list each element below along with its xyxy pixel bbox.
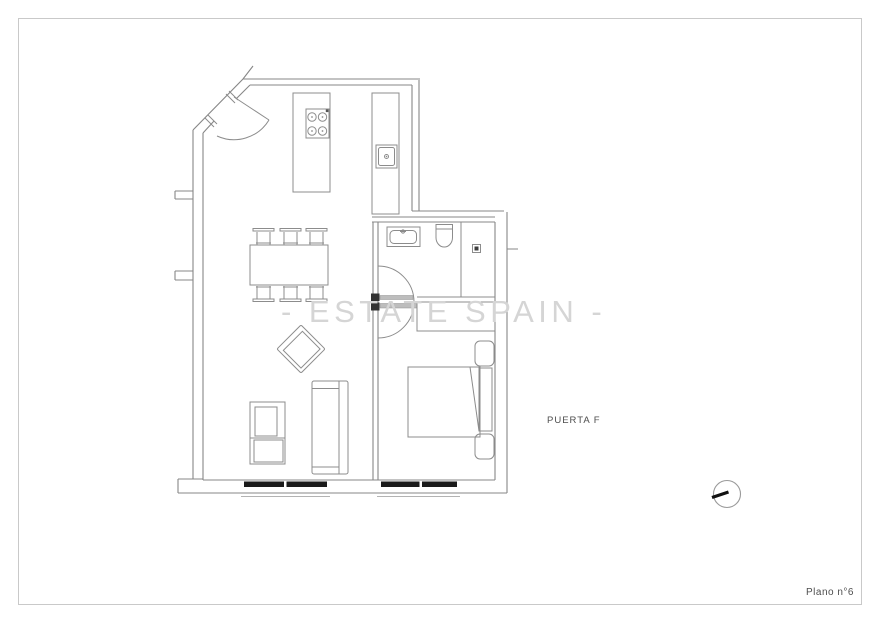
kitchen [293, 93, 399, 214]
shower [461, 222, 481, 297]
door-leaf [234, 97, 269, 120]
stove-icon [306, 109, 329, 138]
toilet-icon [436, 225, 453, 248]
door-jambs [205, 91, 238, 127]
bathroom-sink-icon [387, 227, 420, 247]
north-indicator-icon [712, 481, 741, 508]
mattress [408, 367, 480, 437]
watermark: - ESTATE SPAIN - [281, 294, 606, 330]
pillow [475, 434, 494, 459]
door-swing-arc [217, 120, 269, 140]
tv-unit [250, 402, 285, 464]
kitchen-island [293, 93, 330, 192]
sheet-number-label: Plano n°6 [806, 587, 854, 598]
dining-chairs [253, 229, 327, 302]
entrance-door [205, 91, 269, 140]
pillow [475, 341, 494, 366]
walls [175, 66, 518, 493]
bedroom-window [381, 482, 457, 488]
double-bed [408, 341, 494, 459]
floor-plan-page: - ESTATE SPAIN - PUERTA F Plano n°6 [0, 0, 880, 623]
armchair [277, 325, 325, 373]
windows [241, 481, 460, 497]
living-area [250, 381, 348, 474]
kitchen-sink-icon [376, 145, 397, 168]
door-label: PUERTA F [547, 415, 601, 426]
dining-table [250, 245, 328, 285]
sofa [312, 381, 348, 474]
